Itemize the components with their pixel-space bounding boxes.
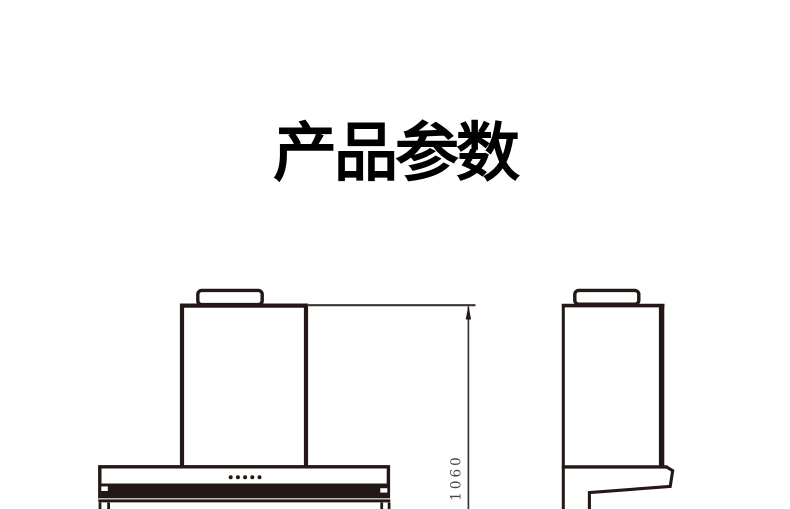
- control-dot: [243, 475, 247, 479]
- product-parameters-section: 产品参数: [0, 0, 790, 509]
- canopy-profile-side: [589, 467, 672, 509]
- range-hood-side-view: [562, 290, 673, 509]
- control-dot: [258, 475, 262, 479]
- range-hood-front-view: [98, 290, 390, 509]
- duct-collar-side: [575, 290, 639, 304]
- strip-highlight-left: [101, 486, 108, 491]
- duct-collar-front: [198, 290, 262, 304]
- product-dimension-diagram: 1060: [0, 0, 790, 509]
- strip-highlight-right: [380, 488, 387, 492]
- dimension-arrow-up-icon: [466, 305, 471, 319]
- control-dot: [236, 475, 240, 479]
- dimension-label: 1060: [449, 454, 465, 500]
- chimney-front: [182, 306, 306, 467]
- filter-strip-front: [100, 484, 389, 496]
- control-dot: [229, 475, 233, 479]
- control-dot: [250, 475, 254, 479]
